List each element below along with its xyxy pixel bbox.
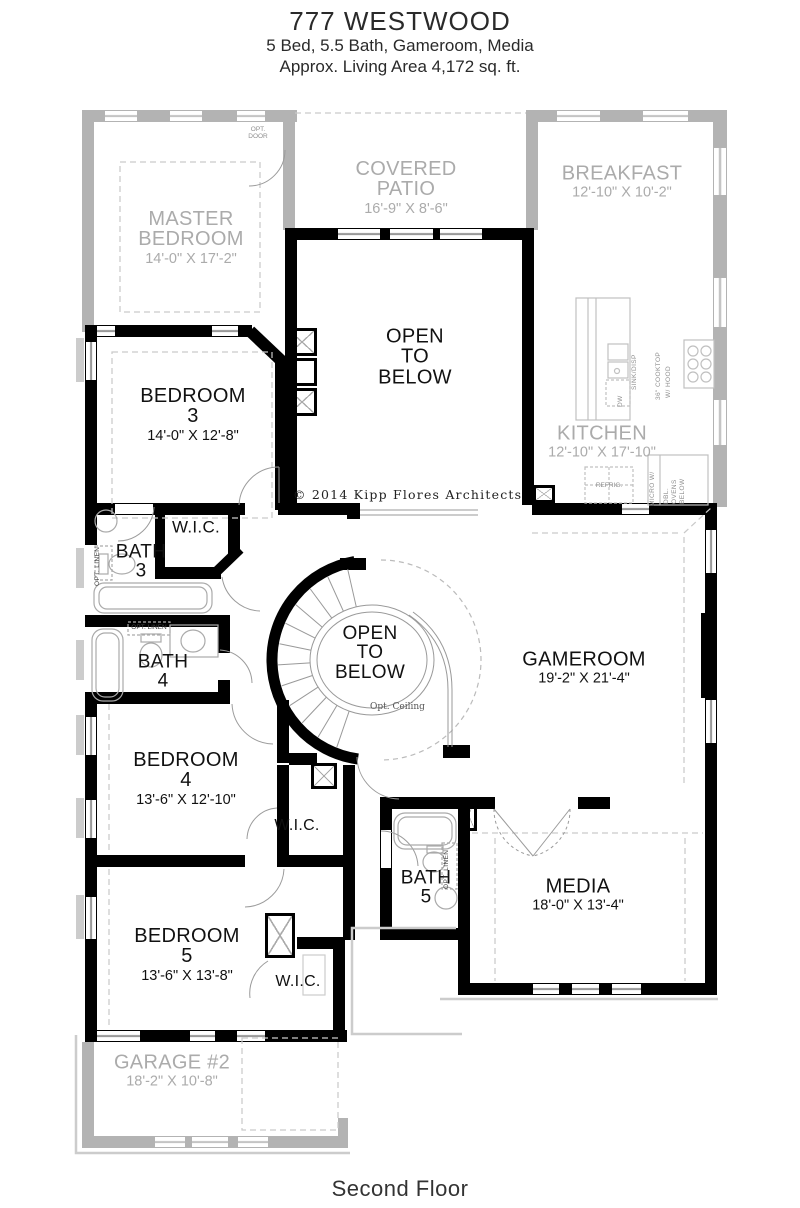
window (238, 1137, 268, 1147)
wall (283, 110, 295, 230)
wall (85, 503, 245, 515)
chase-box (265, 913, 295, 958)
wall (380, 797, 392, 940)
window (86, 800, 96, 838)
opt-ceiling-note: Opt. Ceiling (370, 702, 425, 712)
window-sill (76, 895, 84, 939)
wall (458, 797, 470, 995)
window (86, 897, 96, 939)
wall (85, 855, 245, 867)
wall (218, 615, 230, 653)
wall (277, 700, 289, 763)
window (557, 111, 600, 121)
wall (338, 1118, 348, 1148)
opt-linen-note-bath5: OPT. LINEN (444, 845, 451, 889)
wall (522, 228, 534, 505)
refrig-note: REFRIG. (588, 482, 630, 489)
window (533, 984, 559, 994)
room-label-wic-bedroom4: W.I.C. (274, 818, 319, 834)
wall (85, 692, 230, 704)
window (237, 1031, 265, 1041)
copyright-text: © 2014 Kipp Flores Architects (293, 487, 522, 502)
wall (701, 613, 717, 698)
wall (333, 937, 345, 1042)
room-label-bedroom-5: BEDROOM 5 13'-6" X 13'-8" (134, 926, 239, 984)
opt-linen-note-bath4: OPT. LINEN (128, 624, 170, 631)
window (622, 504, 649, 514)
wall (343, 765, 355, 940)
window (612, 984, 641, 994)
room-label-master-bedroom: MASTER BEDROOM 14'-0" X 17'-2" (138, 209, 243, 267)
window (190, 1031, 215, 1041)
wall (380, 928, 470, 940)
window (338, 229, 380, 239)
window-sill (76, 798, 84, 838)
room-label-breakfast: BREAKFAST 12'-10" X 10'-2" (562, 163, 683, 200)
wall (275, 362, 287, 510)
door-opening (381, 830, 391, 868)
micro-note: MICRO W/ (650, 458, 657, 506)
window (192, 1137, 228, 1147)
window (237, 111, 265, 121)
window (572, 984, 599, 994)
room-label-bedroom-4: BEDROOM 4 13'-6" X 12'-10" (133, 750, 238, 808)
chase-box (311, 763, 337, 789)
window (706, 530, 716, 573)
floor-label: Second Floor (0, 1176, 800, 1202)
window (643, 111, 688, 121)
plan-subtitle: 5 Bed, 5.5 Bath, Gameroom, Media (0, 36, 800, 56)
wall (347, 503, 360, 519)
wall (289, 753, 317, 765)
cooktop-note-line1: 36" COOKTOP (656, 330, 663, 400)
window (170, 111, 202, 121)
window-sill (76, 640, 84, 680)
window (706, 700, 716, 743)
wall (526, 112, 538, 230)
window (86, 717, 96, 755)
wall (340, 558, 366, 570)
room-label-open-to-below-stair: OPEN TO BELOW (335, 624, 405, 682)
dw-note: DW (618, 379, 625, 407)
window (714, 148, 726, 195)
opt-door-note: OPT. DOOR (240, 126, 276, 140)
room-label-gameroom: GAMEROOM 19'-2" X 21'-4" (522, 649, 646, 686)
wall (282, 855, 355, 867)
opt-linen-note-bath3: OPT. LINEN (95, 542, 102, 586)
ovens-note-line2: OVENS (672, 466, 679, 504)
ovens-note-line1: DBL. (664, 466, 671, 504)
wall (380, 797, 444, 809)
window (714, 400, 726, 445)
wall (85, 855, 97, 1042)
window (212, 326, 238, 336)
room-label-wic-bedroom5: W.I.C. (275, 974, 320, 990)
wall (578, 797, 610, 809)
cooktop-note-line2: W/ HOOD (666, 338, 673, 398)
room-label-wic-bath3: W.I.C. (172, 518, 220, 535)
wall (705, 503, 717, 995)
window-sill (76, 548, 84, 588)
window (86, 342, 96, 380)
room-label-covered-patio: COVERED PATIO 16'-9" X 8'-6" (355, 159, 456, 217)
room-label-open-to-below-upper: OPEN TO BELOW (378, 326, 452, 387)
ovens-note-line3: BELOW (680, 466, 687, 504)
window (97, 326, 115, 336)
plan-title: 777 WESTWOOD (0, 6, 800, 37)
window (155, 1137, 185, 1147)
sink-disp-note: SINK/DISP (632, 338, 639, 390)
wall (82, 1042, 94, 1148)
wall (82, 110, 94, 332)
room-label-bath-3: BATH 3 (116, 543, 166, 582)
room-label-garage-2: GARAGE #2 18'-2" X 10'-8" (114, 1052, 230, 1089)
floorplan-page: 777 WESTWOOD 5 Bed, 5.5 Bath, Gameroom, … (0, 0, 800, 1208)
window (390, 229, 433, 239)
window (97, 1031, 140, 1041)
room-label-media: MEDIA 18'-0" X 13'-4" (532, 876, 624, 913)
wall (228, 503, 240, 555)
window (714, 278, 726, 327)
wall (440, 797, 495, 809)
window-sill (76, 715, 84, 755)
room-label-kitchen: KITCHEN 12'-10" X 17'-10" (548, 423, 656, 460)
wall (443, 745, 470, 758)
plan-living-area: Approx. Living Area 4,172 sq. ft. (0, 57, 800, 77)
room-label-bath-4: BATH 4 (138, 653, 188, 692)
window (440, 229, 482, 239)
chase-box (533, 485, 555, 503)
soffit-lines (360, 510, 478, 515)
window (105, 111, 137, 121)
door-opening (115, 504, 153, 514)
room-label-bedroom-3: BEDROOM 3 14'-0" X 12'-8" (140, 386, 245, 444)
window-sill (76, 338, 84, 382)
